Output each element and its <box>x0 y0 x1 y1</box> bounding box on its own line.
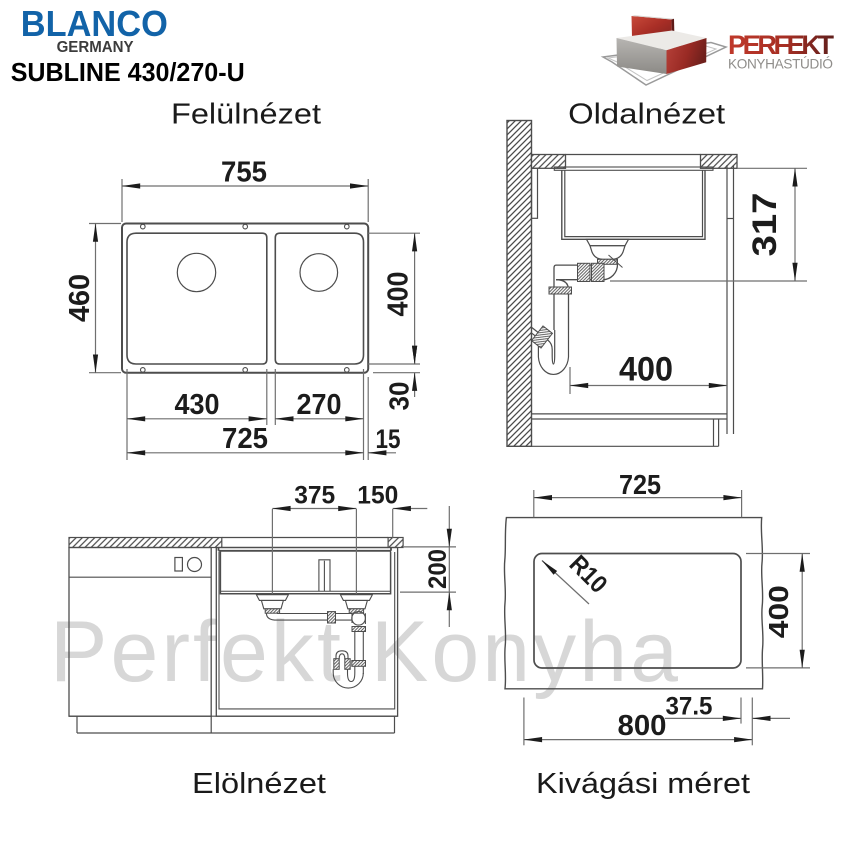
svg-text:270: 270 <box>297 389 342 421</box>
svg-text:150: 150 <box>357 482 398 510</box>
svg-text:400: 400 <box>383 272 415 317</box>
svg-text:PERFEKT: PERFEKT <box>728 30 835 60</box>
svg-text:SUBLINE 430/270-U: SUBLINE 430/270-U <box>11 57 245 87</box>
svg-text:Oldalnézet: Oldalnézet <box>568 99 725 131</box>
svg-text:400: 400 <box>619 351 673 389</box>
svg-text:KONYHASTÚDIÓ: KONYHASTÚDIÓ <box>728 57 833 72</box>
svg-text:Elölnézet: Elölnézet <box>192 768 326 800</box>
svg-text:400: 400 <box>763 585 794 638</box>
svg-text:725: 725 <box>222 423 268 455</box>
svg-text:30: 30 <box>384 382 415 411</box>
svg-text:GERMANY: GERMANY <box>57 39 135 56</box>
svg-text:Kivágási méret: Kivágási méret <box>536 768 750 800</box>
svg-text:200: 200 <box>424 549 452 589</box>
svg-text:375: 375 <box>294 482 335 510</box>
svg-text:15: 15 <box>376 424 401 454</box>
svg-text:460: 460 <box>64 274 96 322</box>
svg-text:725: 725 <box>619 469 661 500</box>
svg-text:R10: R10 <box>564 550 613 599</box>
svg-text:317: 317 <box>746 193 784 257</box>
svg-text:755: 755 <box>221 157 267 189</box>
svg-text:Perfekt Konyha: Perfekt Konyha <box>50 604 678 700</box>
svg-text:Felülnézet: Felülnézet <box>171 99 321 131</box>
svg-text:37.5: 37.5 <box>666 693 713 721</box>
svg-text:800: 800 <box>618 710 667 742</box>
svg-text:430: 430 <box>175 389 220 421</box>
